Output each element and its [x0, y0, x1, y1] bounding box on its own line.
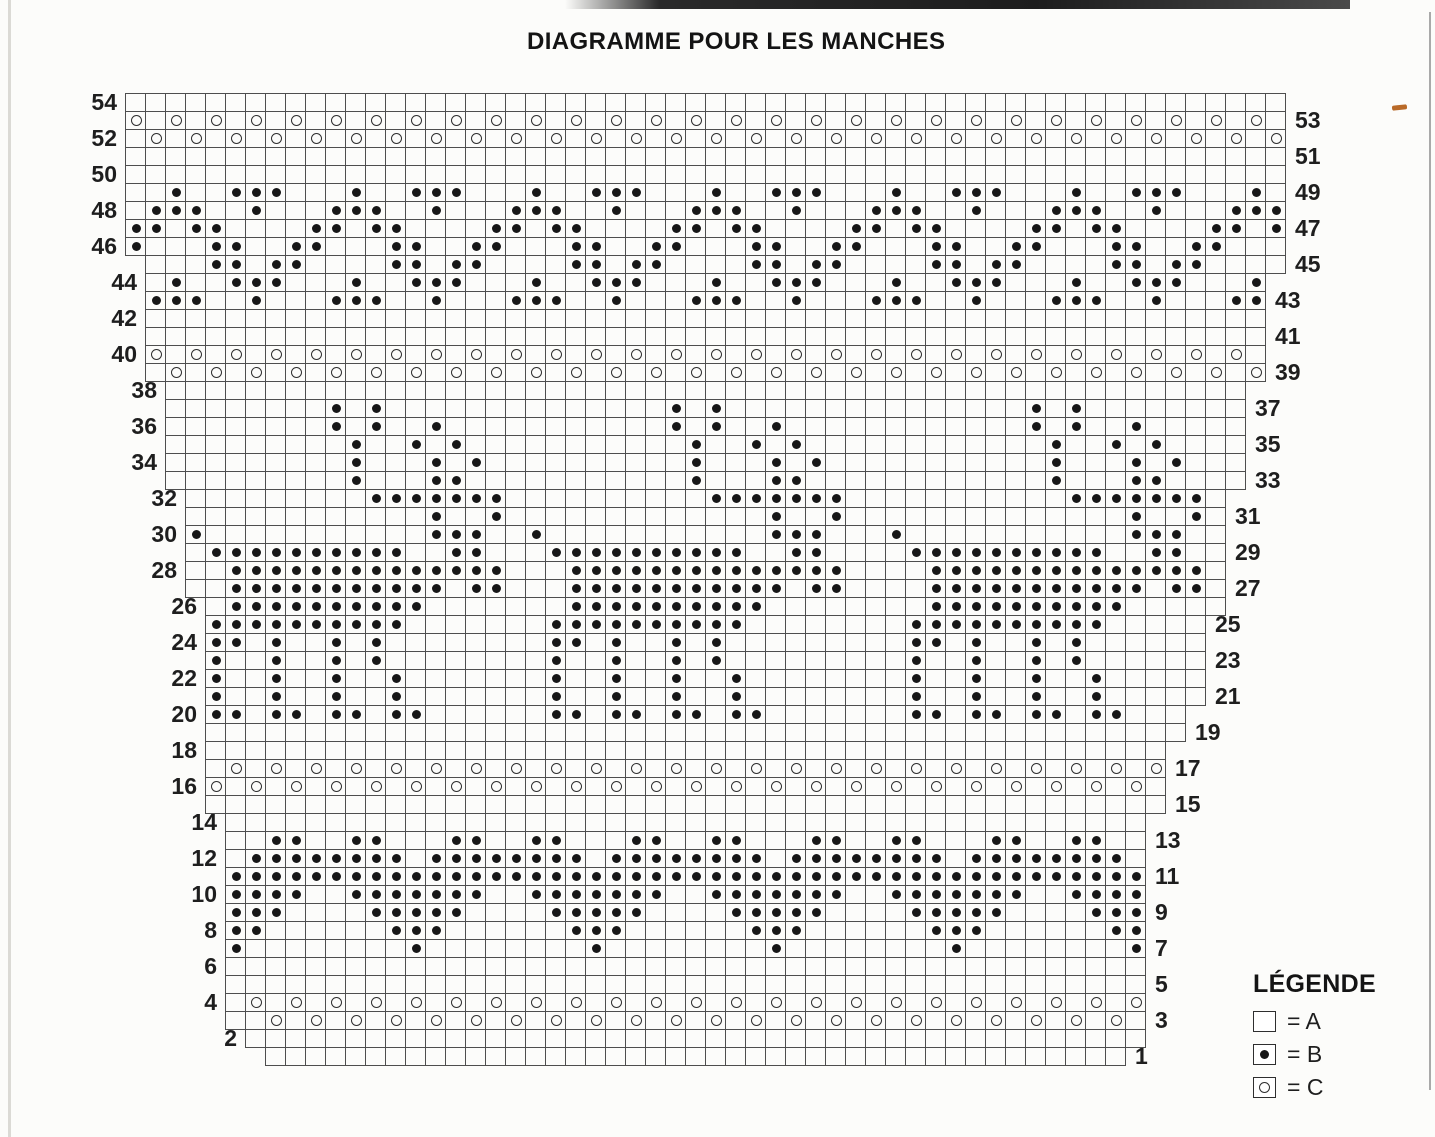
dot-b-cell [672, 224, 681, 233]
dot-b-cell [792, 890, 801, 899]
dot-b-cell [612, 566, 621, 575]
circle-c-cell [591, 133, 602, 144]
grid-row [125, 111, 1286, 130]
dot-b-cell [612, 296, 621, 305]
circle-c-cell [531, 367, 542, 378]
dot-b-cell [732, 206, 741, 215]
dot-b-cell [872, 224, 881, 233]
dot-b-cell [892, 836, 901, 845]
circle-c-cell [571, 997, 582, 1008]
row-label-left: 30 [131, 522, 177, 546]
dot-b-cell [812, 530, 821, 539]
dot-b-cell [672, 674, 681, 683]
row-label-right: 31 [1235, 504, 1261, 528]
circle-c-cell [271, 763, 282, 774]
dot-b-cell [552, 854, 561, 863]
dot-b-cell [532, 296, 541, 305]
dot-b-cell [1132, 278, 1141, 287]
dot-b-cell [812, 890, 821, 899]
circle-c-cell [251, 367, 262, 378]
dot-b-cell [792, 530, 801, 539]
dot-b-cell [372, 548, 381, 557]
dot-b-cell [332, 620, 341, 629]
dot-b-cell [1012, 548, 1021, 557]
circle-c-cell [751, 1015, 762, 1026]
grid-row [225, 993, 1146, 1012]
circle-c-cell [451, 115, 462, 126]
dot-b-cell [1012, 890, 1021, 899]
dot-b-cell [1072, 656, 1081, 665]
dot-b-cell [272, 890, 281, 899]
dot-b-cell [432, 188, 441, 197]
dot-b-cell [312, 854, 321, 863]
dot-b-cell [492, 566, 501, 575]
dot-b-cell [212, 692, 221, 701]
dot-b-cell [1032, 674, 1041, 683]
circle-c-cell [1111, 133, 1122, 144]
dot-b-cell [432, 476, 441, 485]
circle-c-cell [151, 133, 162, 144]
dot-b-cell [692, 224, 701, 233]
dot-b-cell [432, 278, 441, 287]
dot-b-cell [392, 926, 401, 935]
circle-c-cell [1191, 349, 1202, 360]
dot-b-cell [612, 890, 621, 899]
circle-c-cell [831, 133, 842, 144]
dot-b-cell [932, 548, 941, 557]
dot-b-cell [272, 710, 281, 719]
dot-b-cell [752, 908, 761, 917]
dot-b-cell [252, 278, 261, 287]
dot-b-cell [972, 548, 981, 557]
dot-b-cell [812, 548, 821, 557]
dot-b-cell [632, 620, 641, 629]
dot-b-cell [692, 620, 701, 629]
circle-c-cell [611, 997, 622, 1008]
dot-b-cell [712, 836, 721, 845]
dot-b-cell [552, 224, 561, 233]
dot-b-cell [632, 278, 641, 287]
circle-c-cell [631, 1015, 642, 1026]
dot-b-cell [612, 278, 621, 287]
dot-b-cell [1252, 278, 1261, 287]
dot-b-cell [692, 296, 701, 305]
circle-c-cell [1211, 367, 1222, 378]
dot-b-cell [1112, 710, 1121, 719]
dot-b-cell [1012, 872, 1021, 881]
dot-b-cell [912, 656, 921, 665]
dot-b-cell [652, 620, 661, 629]
dot-b-cell [272, 674, 281, 683]
dot-b-cell [312, 242, 321, 251]
circle-c-cell [811, 997, 822, 1008]
dot-b-cell [1092, 854, 1101, 863]
dot-b-cell [372, 404, 381, 413]
dot-b-cell [972, 890, 981, 899]
dot-b-cell [672, 656, 681, 665]
dot-b-cell [432, 926, 441, 935]
dot-b-cell [1052, 566, 1061, 575]
circle-c-cell [771, 115, 782, 126]
dot-b-cell [532, 836, 541, 845]
circle-c-cell [811, 115, 822, 126]
dot-b-cell [592, 188, 601, 197]
circle-c-cell [211, 781, 222, 792]
dot-b-cell [292, 260, 301, 269]
circle-c-cell [931, 367, 942, 378]
dot-b-cell [612, 692, 621, 701]
dot-b-cell [732, 494, 741, 503]
dot-b-cell [592, 620, 601, 629]
dot-b-cell [652, 566, 661, 575]
dot-b-cell [292, 872, 301, 881]
dot-b-cell [1152, 278, 1161, 287]
grid-row [205, 633, 1206, 652]
circle-c-cell [691, 997, 702, 1008]
dot-b-cell [492, 494, 501, 503]
dot-b-cell [552, 206, 561, 215]
dot-b-cell [1092, 710, 1101, 719]
dot-b-cell [1012, 260, 1021, 269]
circle-c-cell [951, 1015, 962, 1026]
dot-b-cell [1032, 224, 1041, 233]
row-label-right: 9 [1155, 900, 1168, 924]
dot-b-cell [452, 854, 461, 863]
dot-b-cell [432, 494, 441, 503]
dot-b-cell [752, 566, 761, 575]
dot-b-cell [992, 584, 1001, 593]
circle-c-cell [671, 349, 682, 360]
dot-b-cell [672, 854, 681, 863]
dot-b-cell [572, 242, 581, 251]
circle-c-cell [251, 781, 262, 792]
circle-c-cell [251, 997, 262, 1008]
dot-b-cell [1052, 584, 1061, 593]
dot-b-cell [312, 620, 321, 629]
dot-b-cell [1132, 890, 1141, 899]
dot-b-cell [372, 584, 381, 593]
circle-c-cell [771, 781, 782, 792]
dot-b-cell [1232, 224, 1241, 233]
dot-b-cell [332, 674, 341, 683]
circle-c-cell [1051, 367, 1062, 378]
circle-c-cell [591, 349, 602, 360]
dot-b-cell [252, 296, 261, 305]
dot-b-cell [332, 566, 341, 575]
dot-b-cell [1132, 530, 1141, 539]
dot-b-cell [552, 638, 561, 647]
grid-row [205, 669, 1206, 688]
dot-b-cell [732, 836, 741, 845]
dot-b-cell [732, 584, 741, 593]
dot-b-cell [992, 872, 1001, 881]
dot-b-cell [932, 890, 941, 899]
dot-b-cell [652, 872, 661, 881]
dot-b-cell [452, 476, 461, 485]
dot-b-cell [832, 890, 841, 899]
dot-b-cell [472, 260, 481, 269]
dot-b-cell [152, 224, 161, 233]
dot-b-cell [272, 620, 281, 629]
circle-c-cell [911, 133, 922, 144]
dot-b-cell [1012, 242, 1021, 251]
dot-b-cell [412, 260, 421, 269]
dot-b-cell [272, 908, 281, 917]
dot-b-cell [332, 206, 341, 215]
dot-b-cell [252, 206, 261, 215]
dot-b-cell [832, 584, 841, 593]
circle-c-cell [911, 349, 922, 360]
circle-c-cell [1111, 763, 1122, 774]
dot-b-cell [992, 602, 1001, 611]
dot-b-cell [1152, 440, 1161, 449]
dot-b-cell [952, 908, 961, 917]
dot-b-cell [792, 566, 801, 575]
dot-b-cell [1072, 890, 1081, 899]
circle-c-cell [171, 115, 182, 126]
dot-b-cell [1092, 872, 1101, 881]
circle-c-cell [1051, 997, 1062, 1008]
circle-c-cell [891, 997, 902, 1008]
dot-b-cell [1032, 584, 1041, 593]
dot-b-cell [292, 584, 301, 593]
dot-b-cell [292, 242, 301, 251]
dot-b-cell [1052, 620, 1061, 629]
dot-b-cell [432, 908, 441, 917]
dot-b-cell [1152, 296, 1161, 305]
dot-b-cell [452, 278, 461, 287]
dot-b-cell [1132, 188, 1141, 197]
dot-b-cell [452, 872, 461, 881]
dot-b-cell [272, 584, 281, 593]
dot-b-cell [892, 188, 901, 197]
dot-b-cell [1092, 548, 1101, 557]
circle-c-cell [291, 115, 302, 126]
dot-b-cell [352, 206, 361, 215]
dot-b-cell [572, 548, 581, 557]
circle-c-cell [1151, 763, 1162, 774]
legend-label-a: = A [1287, 1008, 1321, 1035]
dot-b-cell [392, 710, 401, 719]
grid-row [125, 93, 1286, 112]
dot-b-cell [1052, 476, 1061, 485]
grid-row [225, 939, 1146, 958]
dot-b-cell [1092, 692, 1101, 701]
dot-b-cell [932, 926, 941, 935]
dot-b-cell [512, 206, 521, 215]
dot-b-cell [792, 908, 801, 917]
dot-b-cell [752, 242, 761, 251]
dot-b-cell [832, 872, 841, 881]
dot-b-cell [992, 710, 1001, 719]
circle-c-cell [911, 1015, 922, 1026]
circle-c-cell [711, 1015, 722, 1026]
dot-b-cell [472, 836, 481, 845]
dot-b-cell [772, 494, 781, 503]
circle-c-cell [1031, 1015, 1042, 1026]
dot-b-cell [492, 584, 501, 593]
row-label-right: 15 [1175, 792, 1201, 816]
circle-c-cell [551, 763, 562, 774]
dot-b-cell [892, 278, 901, 287]
dot-b-cell [1152, 476, 1161, 485]
dot-b-cell [372, 620, 381, 629]
dot-b-cell [572, 224, 581, 233]
dot-b-cell [212, 638, 221, 647]
circle-c-cell [511, 1015, 522, 1026]
row-label-right: 1 [1135, 1044, 1148, 1068]
dot-b-cell [732, 602, 741, 611]
dot-b-cell [772, 566, 781, 575]
dot-b-cell [252, 584, 261, 593]
dot-b-cell [232, 278, 241, 287]
dot-b-cell [392, 494, 401, 503]
dot-b-cell [552, 872, 561, 881]
dot-b-cell [1152, 188, 1161, 197]
dot-b-cell [1112, 494, 1121, 503]
legend-label-b: = B [1287, 1041, 1322, 1068]
row-label-right: 13 [1155, 828, 1181, 852]
dot-b-cell [812, 458, 821, 467]
circle-c-cell [611, 781, 622, 792]
dot-b-cell [912, 836, 921, 845]
dot-b-cell [332, 638, 341, 647]
dot-b-cell [572, 602, 581, 611]
dot-b-cell [792, 188, 801, 197]
circle-c-cell [251, 115, 262, 126]
dot-b-cell [332, 602, 341, 611]
row-label-left: 14 [171, 810, 217, 834]
dot-b-cell [612, 188, 621, 197]
dot-b-cell [1172, 260, 1181, 269]
grid-row [125, 201, 1286, 220]
dot-b-cell [532, 872, 541, 881]
dot-b-cell [212, 242, 221, 251]
dot-b-cell [752, 224, 761, 233]
dot-b-cell [1132, 908, 1141, 917]
dot-b-cell [1192, 566, 1201, 575]
dot-b-cell [732, 854, 741, 863]
dot-b-cell [932, 584, 941, 593]
circle-c-cell [871, 763, 882, 774]
dot-b-cell [972, 206, 981, 215]
dot-b-cell [592, 944, 601, 953]
dot-b-cell [912, 224, 921, 233]
dot-b-cell [352, 548, 361, 557]
dot-b-cell [1032, 638, 1041, 647]
circle-c-cell [971, 997, 982, 1008]
circle-c-cell [671, 1015, 682, 1026]
dot-b-cell [352, 710, 361, 719]
dot-b-cell [1072, 602, 1081, 611]
circle-c-cell [551, 349, 562, 360]
dot-b-cell [272, 656, 281, 665]
dot-b-cell [392, 602, 401, 611]
dot-b-cell [272, 638, 281, 647]
dot-b-cell [692, 458, 701, 467]
dot-b-cell [452, 188, 461, 197]
dot-b-cell [652, 584, 661, 593]
dot-b-cell [372, 494, 381, 503]
dot-b-cell [532, 854, 541, 863]
dot-b-cell [252, 620, 261, 629]
dot-b-cell [572, 872, 581, 881]
row-label-left: 40 [91, 342, 137, 366]
dot-b-cell [552, 710, 561, 719]
grid-row [125, 129, 1286, 148]
dot-b-cell [1252, 188, 1261, 197]
dot-b-cell [772, 242, 781, 251]
dot-b-cell [352, 458, 361, 467]
row-label-right: 53 [1295, 108, 1321, 132]
dot-b-cell [632, 188, 641, 197]
dot-b-cell [192, 206, 201, 215]
circle-c-cell [931, 781, 942, 792]
circle-c-cell [291, 367, 302, 378]
circle-c-cell [731, 115, 742, 126]
circle-c-cell [491, 781, 502, 792]
dot-b-cell [1092, 836, 1101, 845]
dot-b-cell [1052, 458, 1061, 467]
row-label-right: 11 [1155, 864, 1179, 888]
dot-b-cell [932, 872, 941, 881]
dot-b-cell [332, 548, 341, 557]
dot-b-cell [1052, 710, 1061, 719]
dot-b-cell [552, 620, 561, 629]
dot-b-cell [452, 260, 461, 269]
dot-b-cell [972, 872, 981, 881]
dot-b-cell [772, 926, 781, 935]
row-label-right: 33 [1255, 468, 1281, 492]
dot-b-cell [672, 638, 681, 647]
dot-b-cell [972, 620, 981, 629]
dot-b-cell [1132, 422, 1141, 431]
dot-b-cell [452, 908, 461, 917]
circle-c-cell [311, 133, 322, 144]
dot-b-cell [1252, 206, 1261, 215]
circle-c-cell [1131, 781, 1142, 792]
dot-b-cell [352, 620, 361, 629]
dot-b-cell [1132, 872, 1141, 881]
dot-b-cell [192, 296, 201, 305]
dot-b-cell [592, 548, 601, 557]
dot-b-cell [1052, 854, 1061, 863]
dot-b-cell [912, 620, 921, 629]
circle-c-cell [1091, 367, 1102, 378]
circle-c-cell [371, 115, 382, 126]
dot-b-cell [552, 674, 561, 683]
dot-b-cell [412, 944, 421, 953]
dot-b-cell [232, 872, 241, 881]
dot-b-cell [632, 548, 641, 557]
dot-b-cell [292, 566, 301, 575]
grid-row [125, 183, 1286, 202]
dot-b-cell [512, 296, 521, 305]
circle-c-cell [711, 133, 722, 144]
circle-c-cell [171, 367, 182, 378]
row-label-right: 19 [1195, 720, 1221, 744]
dot-b-cell [392, 692, 401, 701]
dot-b-cell [992, 908, 1001, 917]
dot-b-cell [692, 476, 701, 485]
grid-row [245, 1029, 1146, 1048]
dot-b-cell [312, 584, 321, 593]
grid-row [165, 453, 1246, 472]
circle-c-cell [451, 997, 462, 1008]
dot-b-cell [772, 476, 781, 485]
dot-b-cell [792, 494, 801, 503]
dot-b-cell [992, 854, 1001, 863]
